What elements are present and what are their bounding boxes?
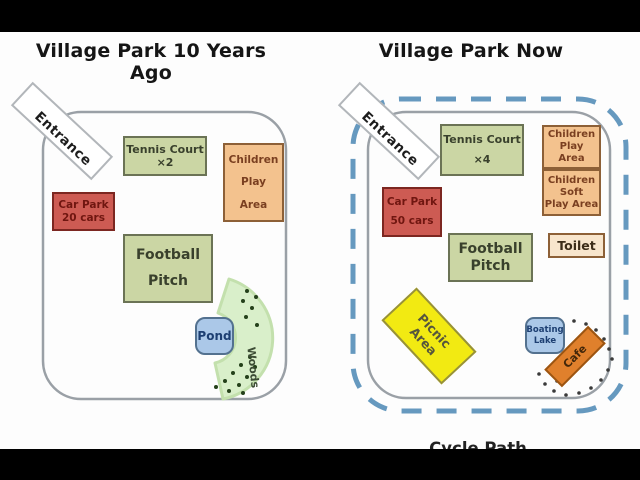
letterbox-top [0, 0, 640, 32]
boating-lake-line1: Boating [526, 325, 563, 335]
right-children-play-line3: Area [558, 153, 584, 165]
right-children-play-line2: Play [560, 141, 584, 153]
screenshot-stage: Village Park 10 Years Ago Village Park N… [0, 0, 640, 480]
left-car-park-box: Car Park 20 cars [52, 192, 115, 231]
right-tennis-court-box: Tennis Court ×4 [440, 124, 524, 176]
children-soft-play-line2: Soft [560, 187, 583, 199]
right-tennis-line1: Tennis Court [443, 133, 520, 146]
left-football-line2: Pitch [148, 273, 188, 290]
pond-box: Pond [195, 317, 234, 355]
letterbox-bottom [0, 449, 640, 480]
left-tennis-line2: ×2 [157, 156, 174, 169]
left-tennis-line1: Tennis Court [126, 143, 203, 156]
boating-lake-box: Boating Lake [525, 317, 565, 354]
left-tennis-court-box: Tennis Court ×2 [123, 136, 207, 176]
right-football-line1: Football [459, 241, 523, 258]
children-soft-play-area-box: Children Soft Play Area [542, 169, 601, 216]
left-children-play-line3: Area [240, 199, 268, 212]
pond-label: Pond [197, 329, 231, 343]
map-shapes-layer [0, 32, 640, 449]
left-car-park-line1: Car Park [58, 199, 108, 212]
left-children-play-area-box: Children Play Area [223, 143, 284, 222]
right-car-park-box: Car Park 50 cars [382, 187, 442, 237]
right-football-line2: Pitch [470, 258, 510, 275]
left-car-park-line2: 20 cars [62, 212, 105, 225]
children-soft-play-line3: Play Area [545, 199, 598, 211]
diagram-canvas: Village Park 10 Years Ago Village Park N… [0, 32, 640, 449]
right-car-park-line2: 50 cars [390, 215, 433, 228]
toilet-label: Toilet [557, 238, 595, 253]
right-car-park-line1: Car Park [387, 196, 437, 209]
left-children-play-line2: Play [241, 176, 266, 189]
right-children-play-line1: Children [548, 129, 595, 141]
right-tennis-line2: ×4 [474, 153, 491, 166]
left-football-pitch-box: Football Pitch [123, 234, 213, 303]
children-soft-play-line1: Children [548, 175, 595, 187]
left-children-play-line1: Children [229, 154, 279, 167]
left-football-line1: Football [136, 247, 200, 264]
right-football-pitch-box: Football Pitch [448, 233, 533, 282]
right-children-play-area-box: Children Play Area [542, 125, 601, 169]
boating-lake-line2: Lake [534, 336, 556, 346]
toilet-box: Toilet [548, 233, 605, 258]
